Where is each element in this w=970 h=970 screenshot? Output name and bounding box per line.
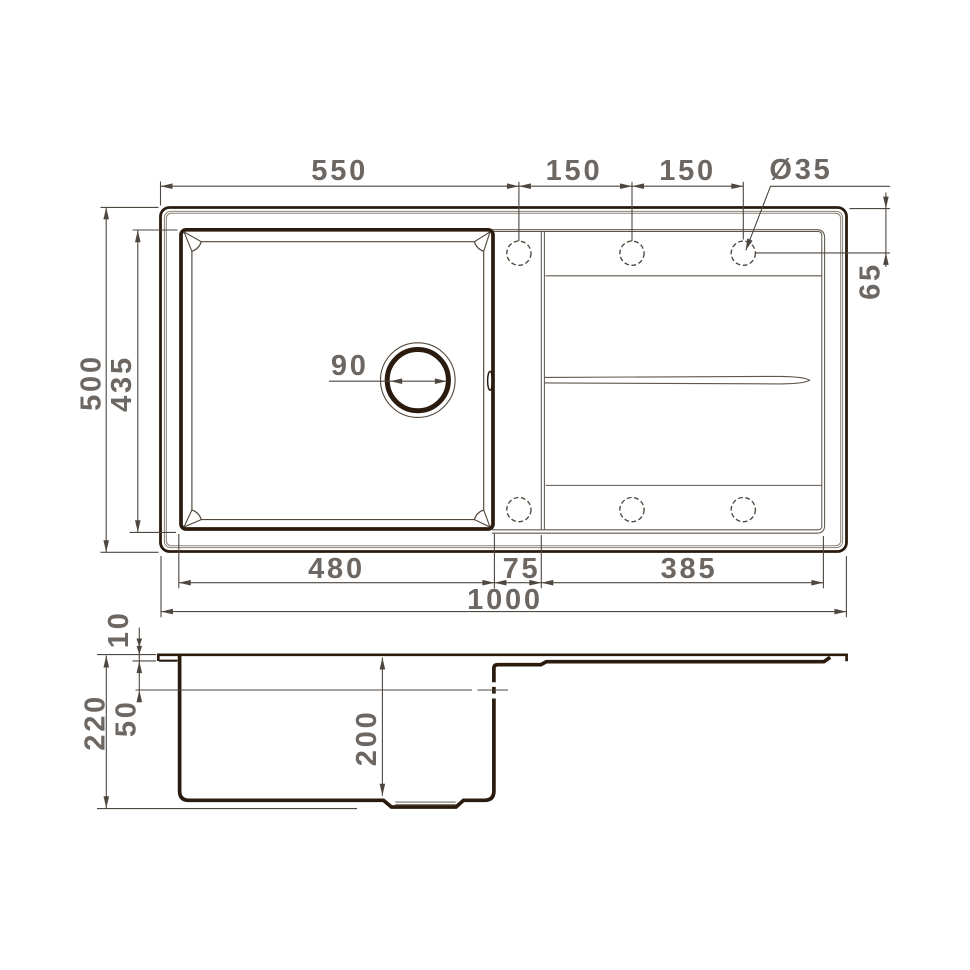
svg-text:1000: 1000 [467, 584, 543, 616]
svg-text:75: 75 [503, 553, 541, 585]
svg-text:220: 220 [79, 694, 111, 751]
svg-text:90: 90 [331, 350, 369, 382]
svg-text:150: 150 [659, 155, 716, 187]
svg-text:385: 385 [661, 553, 718, 585]
svg-text:Ø35: Ø35 [769, 154, 832, 186]
svg-text:10: 10 [103, 610, 135, 648]
svg-text:435: 435 [106, 355, 138, 412]
svg-text:500: 500 [76, 354, 108, 411]
svg-text:480: 480 [308, 553, 365, 585]
svg-text:550: 550 [311, 155, 368, 187]
svg-text:65: 65 [855, 262, 887, 300]
svg-text:50: 50 [111, 699, 143, 737]
svg-text:150: 150 [546, 155, 603, 187]
svg-text:200: 200 [351, 709, 383, 766]
